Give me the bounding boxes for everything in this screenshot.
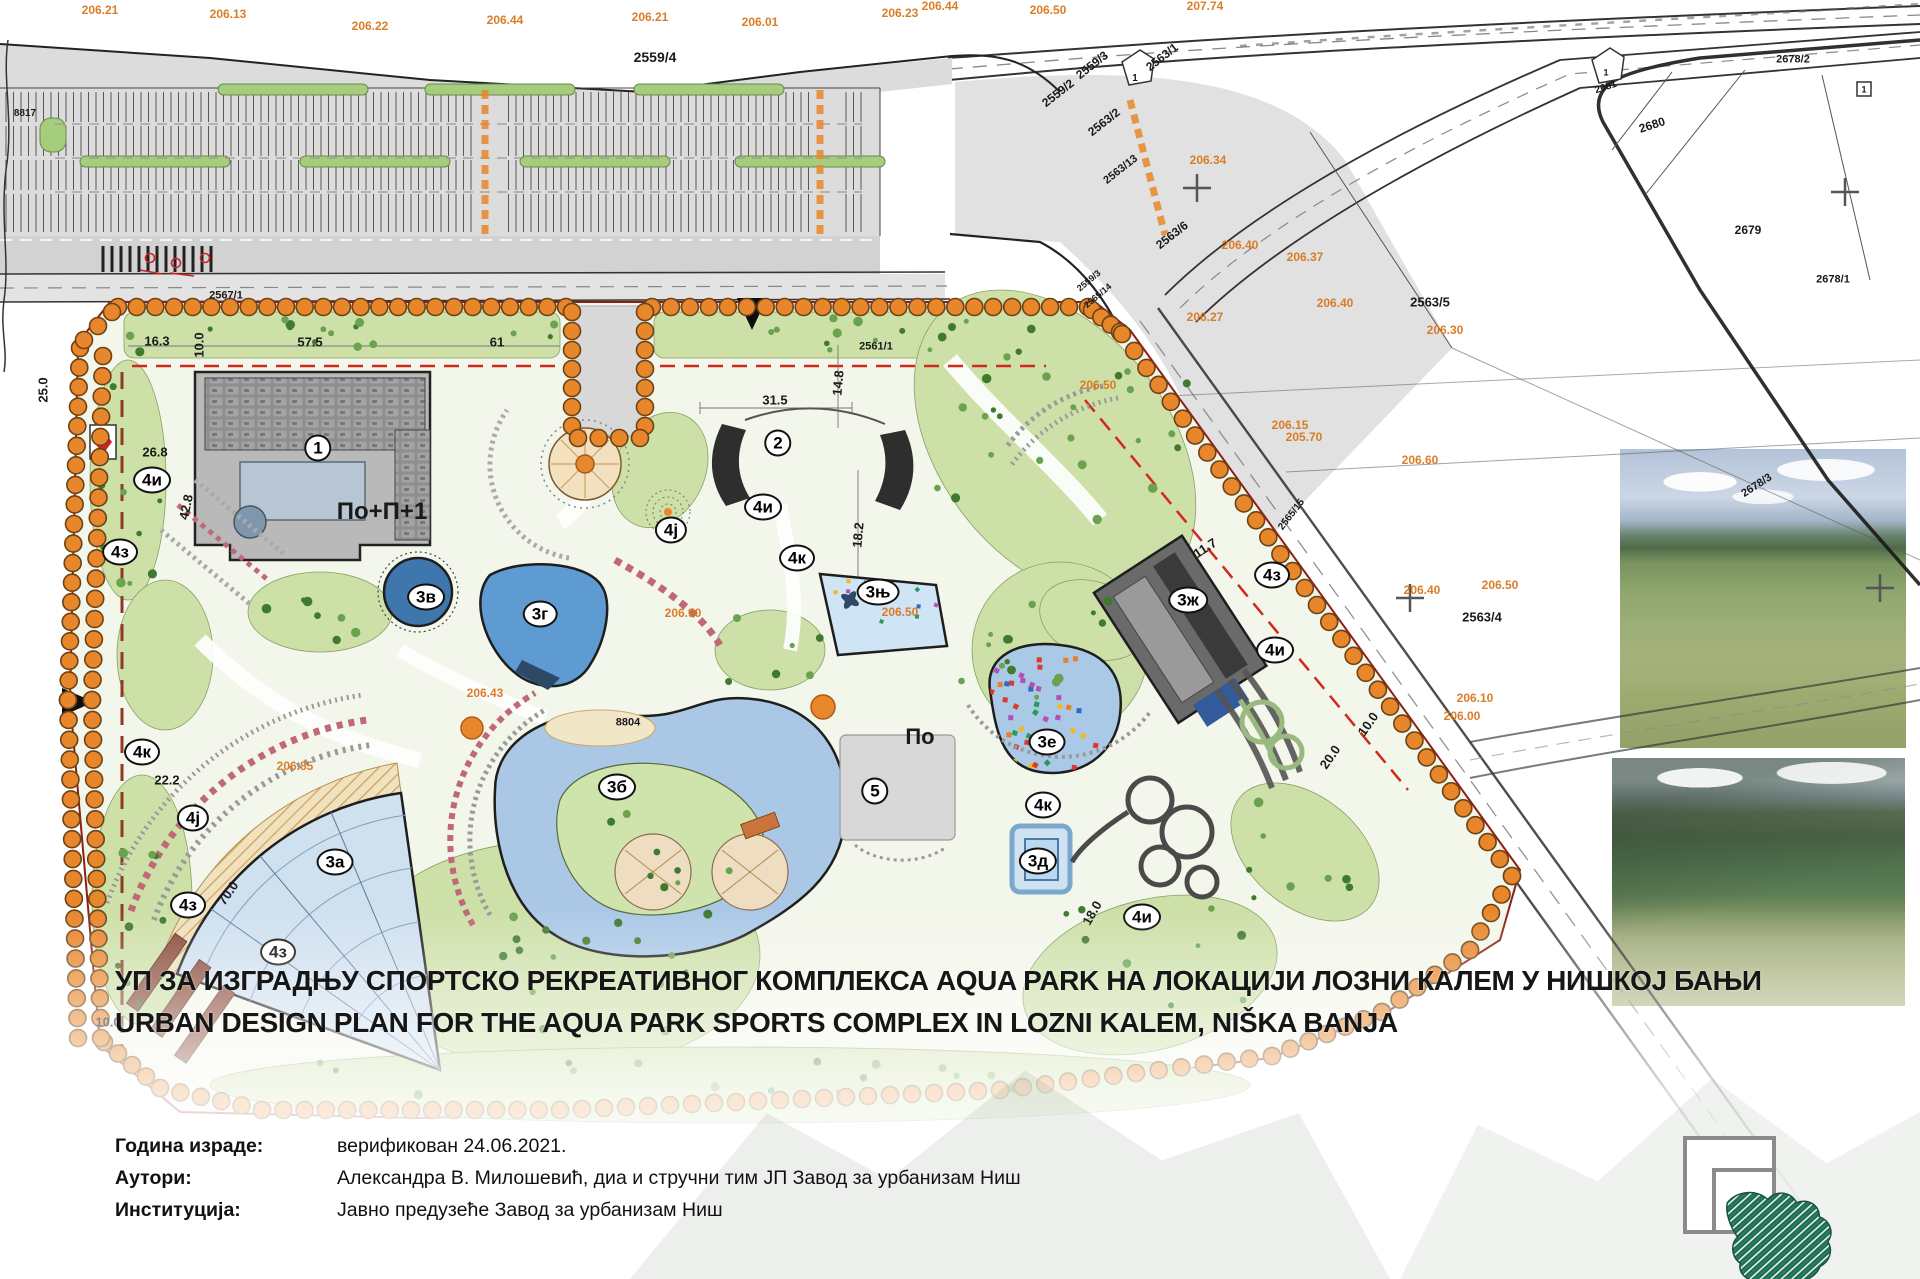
title-block: УП ЗА ИЗГРАДЊУ СПОРТСКО РЕКРЕАТИВНОГ КОМ… [115, 960, 1835, 1044]
credits-block: Година израде: верификован 24.06.2021. А… [115, 1136, 1215, 1232]
meta-row-institution: Институција: Јавно предузеће Завод за ур… [115, 1200, 1215, 1221]
main-building [195, 372, 430, 560]
title-english: URBAN DESIGN PLAN FOR THE AQUA PARK SPOR… [115, 1002, 1835, 1044]
title-serbian: УП ЗА ИЗГРАДЊУ СПОРТСКО РЕКРЕАТИВНОГ КОМ… [115, 960, 1835, 1002]
meta-value-authors: Александра В. Милошевић, диа и стручни т… [337, 1168, 1021, 1189]
meta-label-year: Година израде: [115, 1136, 337, 1157]
urban-plan-sheet: { "title": { "line1_sr": "УП ЗА ИЗГРАДЊУ… [0, 0, 1920, 1279]
meta-label-institution: Институција: [115, 1200, 337, 1221]
meta-row-year: Година израде: верификован 24.06.2021. [115, 1136, 1215, 1157]
meta-row-authors: Аутори: Александра В. Милошевић, диа и с… [115, 1168, 1215, 1189]
kids-pool-3d [1012, 826, 1070, 892]
meta-value-institution: Јавно предузеће Завод за урбанизам Ниш [337, 1200, 723, 1221]
site-plan-map [0, 0, 1920, 1279]
meta-label-authors: Аутори: [115, 1168, 337, 1189]
institute-logo-graphic [1672, 1130, 1842, 1279]
institute-logo [1672, 1130, 1842, 1279]
meta-value-year: верификован 24.06.2021. [337, 1136, 566, 1157]
